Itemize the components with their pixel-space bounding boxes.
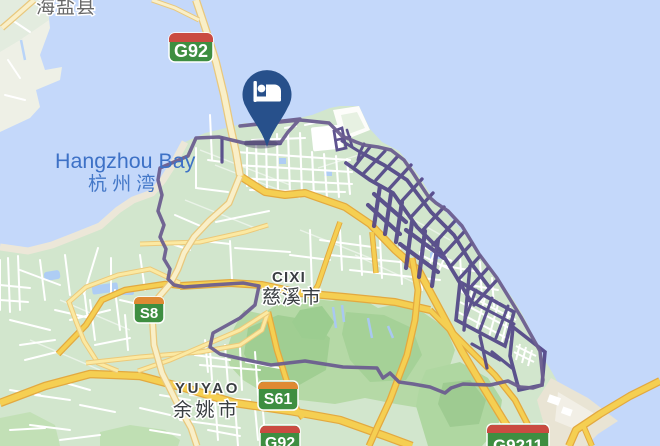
- svg-text:余姚市: 余姚市: [173, 399, 241, 421]
- svg-text:YUYAO: YUYAO: [175, 380, 240, 397]
- svg-text:Hangzhou Bay: Hangzhou Bay: [55, 149, 196, 173]
- svg-text:G92: G92: [265, 435, 295, 446]
- svg-text:G92: G92: [174, 41, 208, 61]
- svg-text:慈溪市: 慈溪市: [262, 286, 321, 308]
- svg-text:CIXI: CIXI: [272, 269, 306, 286]
- svg-text:S8: S8: [140, 305, 158, 322]
- svg-text:海盐县: 海盐县: [36, 0, 96, 18]
- svg-text:G9211: G9211: [493, 436, 543, 446]
- svg-text:S61: S61: [264, 391, 293, 408]
- svg-text:杭州湾: 杭州湾: [88, 173, 161, 195]
